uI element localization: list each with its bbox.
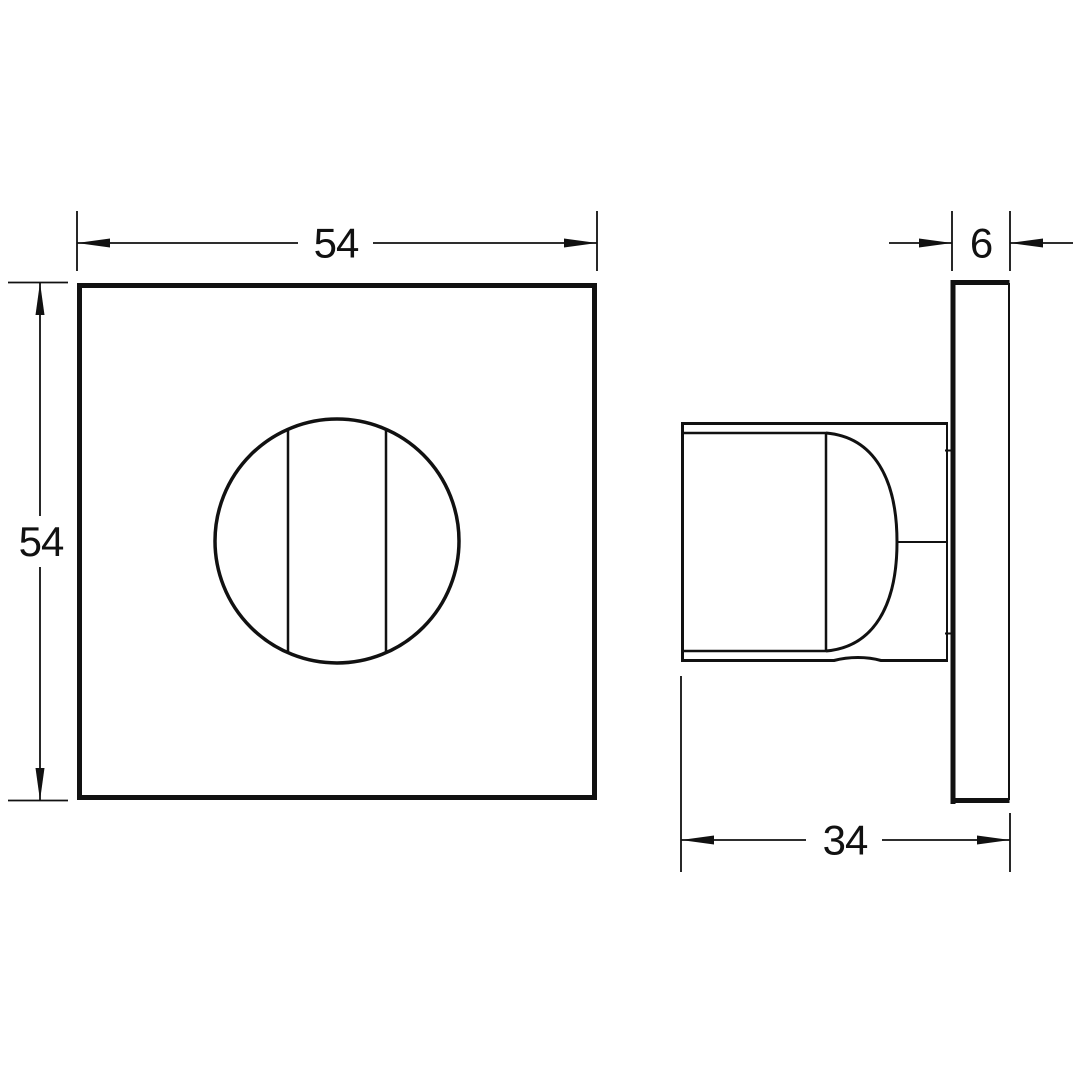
front-plate-outline (80, 286, 595, 798)
dimension-value: 54 (19, 518, 64, 565)
front-view (80, 286, 595, 798)
dimension-value: 54 (314, 220, 359, 267)
dimension-front-height: 54 (8, 283, 68, 801)
arrowhead-right-icon (564, 239, 597, 248)
arrowhead-right-icon (977, 836, 1010, 845)
thumbturn-dimension-drawing: 54 54 6 (0, 0, 1080, 1080)
dimension-value: 34 (823, 817, 868, 864)
arrowhead-left-icon (1010, 239, 1043, 248)
arrowhead-right-icon (919, 239, 952, 248)
knob-dome-curve (826, 433, 897, 651)
arrowhead-left-icon (681, 836, 714, 845)
dimension-front-width: 54 (77, 211, 597, 271)
dimension-plate-thickness: 6 (889, 211, 1073, 271)
arrowhead-left-icon (77, 239, 110, 248)
side-view (681, 280, 1010, 804)
thumbturn-circle (215, 419, 459, 663)
technical-drawing-canvas: 54 54 6 (0, 0, 1080, 1080)
knob-bottom-edge (681, 658, 948, 661)
dimension-value: 6 (970, 220, 992, 267)
dimension-knob-projection: 34 (681, 676, 1010, 872)
arrowhead-up-icon (36, 283, 45, 316)
arrowhead-down-icon (36, 768, 45, 801)
